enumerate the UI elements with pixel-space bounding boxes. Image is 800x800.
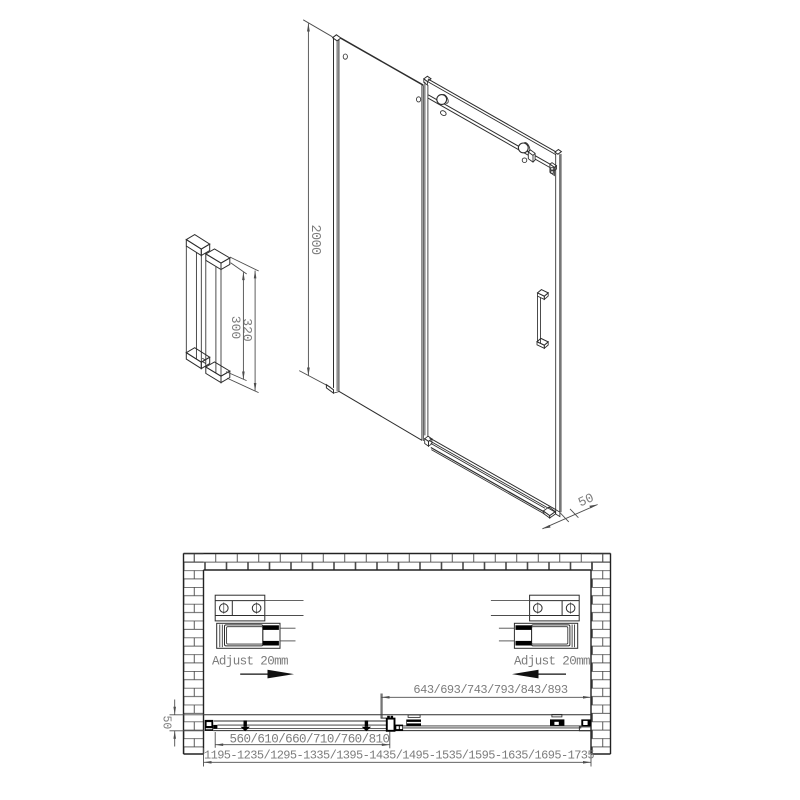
- svg-text:50: 50: [160, 715, 173, 729]
- svg-text:643/693/743/793/843/893: 643/693/743/793/843/893: [413, 683, 567, 697]
- svg-text:320: 320: [240, 318, 255, 341]
- svg-text:Adjust 20mm: Adjust 20mm: [212, 655, 288, 669]
- svg-text:2000: 2000: [307, 224, 322, 255]
- svg-text:1195-1235/1295-1335/1395-1435/: 1195-1235/1295-1335/1395-1435/1495-1535/…: [204, 748, 594, 762]
- svg-text:Adjust 20mm: Adjust 20mm: [514, 655, 590, 669]
- svg-text:560/610/660/710/760/810: 560/610/660/710/760/810: [230, 733, 390, 747]
